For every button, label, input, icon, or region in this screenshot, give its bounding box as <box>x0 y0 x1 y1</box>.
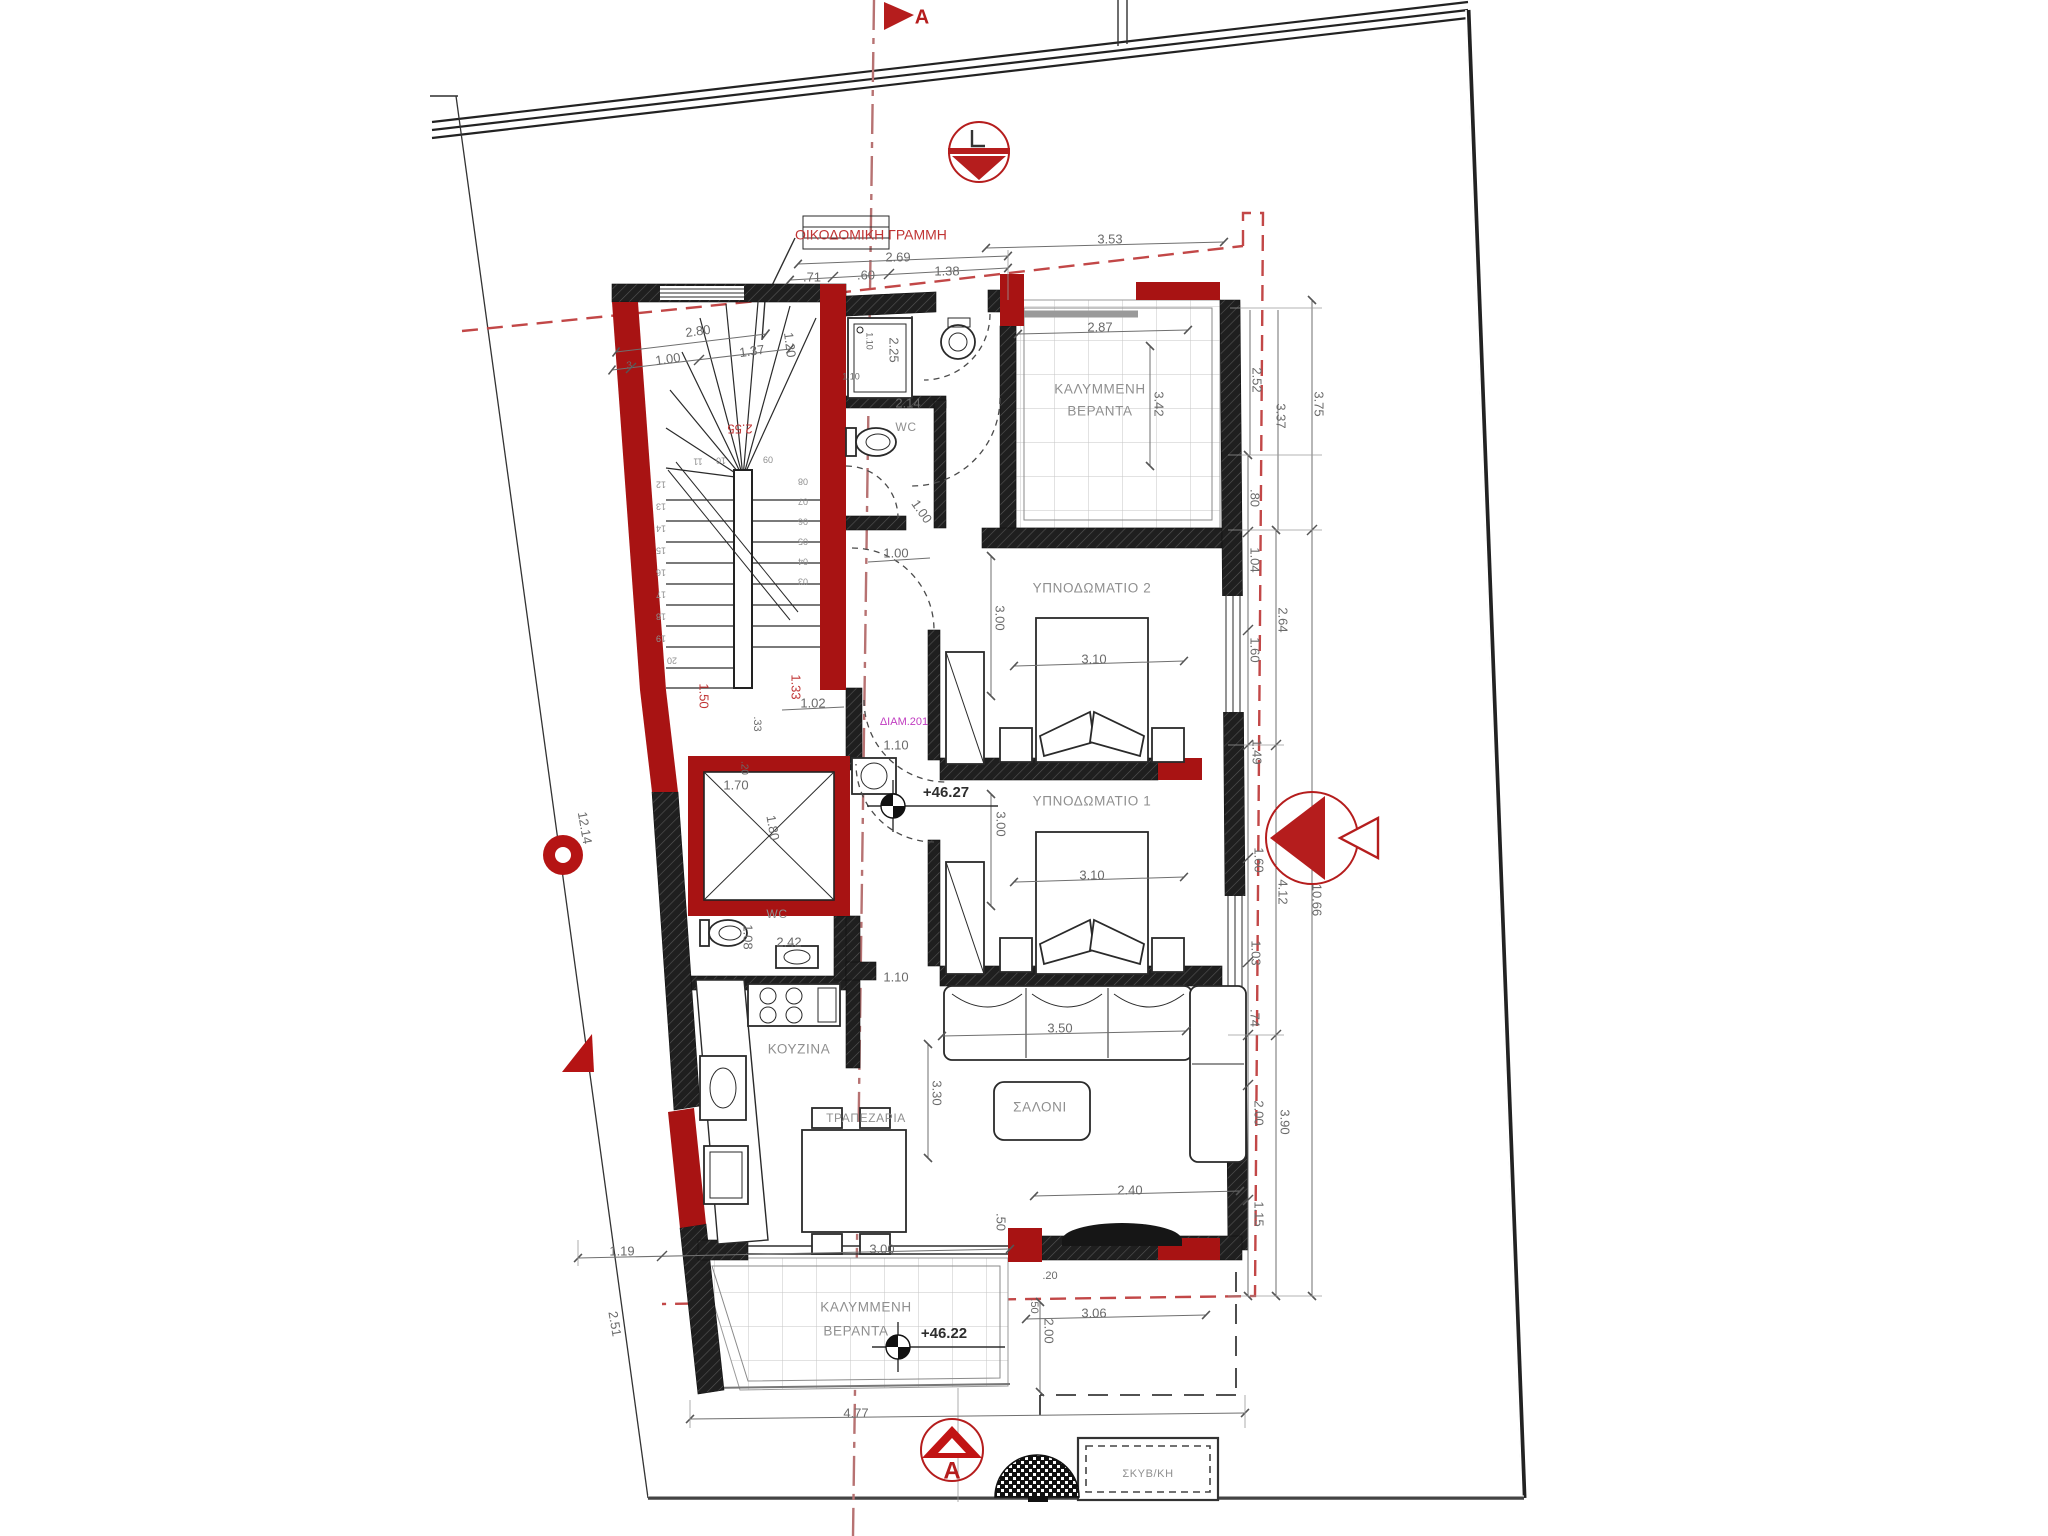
stair-num-04: 04 <box>798 557 808 567</box>
dim-3-50: 3.50 <box>1047 1020 1072 1035</box>
level-46-27: +46.27 <box>923 784 969 801</box>
room-veranda-top-2: ΒΕΡΑΝΤΑ <box>1067 404 1132 419</box>
bedroom1-furniture <box>946 832 1184 974</box>
room-kitchen: ΚΟΥΖΙΝΑ <box>768 1042 831 1057</box>
dim-10-66: 10.66 <box>1310 884 1325 917</box>
stair-num-13: 13 <box>656 502 666 512</box>
room-bedroom-1: ΥΠΝΟΔΩΜΑΤΙΟ 1 <box>1033 794 1152 809</box>
dim-1-19: 1.19 <box>609 1243 634 1258</box>
dim-1-70: 1.70 <box>723 777 748 792</box>
kitchen-sink-icon <box>700 1056 746 1120</box>
dim-4-77: 4.77 <box>843 1405 868 1420</box>
section-a-top: A <box>915 6 929 28</box>
dim-2-00-b: 2.00 <box>1042 1318 1057 1343</box>
dining-table <box>802 1130 906 1232</box>
dim-1-10-c: 1.10 <box>883 737 908 752</box>
dim-2-40: 2.40 <box>1117 1182 1142 1197</box>
dining-furniture <box>802 1108 906 1254</box>
dim-3-00-c: 3.00 <box>869 1241 894 1256</box>
tree-icon <box>995 1455 1079 1497</box>
dim-3-30: 3.30 <box>930 1080 945 1105</box>
floor-plan-drawing: ΟΙΚΟΔΟΜΙΚΗ ΓΡΑΜΜΗ3.532.69.71.601.382.80.… <box>0 0 2048 1536</box>
room-wc-2: WC <box>766 907 787 921</box>
toilet-1-tank <box>846 428 856 456</box>
stair-num-19: 19 <box>656 634 666 644</box>
stair-num-10: 10 <box>716 456 726 466</box>
stair-num-18: 18 <box>656 612 666 622</box>
stair-num-12: 12 <box>656 480 666 490</box>
dim-1-60-a: 1.60 <box>1248 637 1263 662</box>
room-bedroom-2: ΥΠΝΟΔΩΜΑΤΙΟ 2 <box>1033 581 1152 596</box>
dim-1-04: 1.04 <box>1248 547 1263 572</box>
room-veranda-bottom-2: ΒΕΡΑΝΤΑ <box>823 1324 888 1339</box>
dim-3-53: 3.53 <box>1097 231 1122 246</box>
stair-num-03: 03 <box>798 577 808 587</box>
stair-num-07: 07 <box>798 497 808 507</box>
stair-num-08: 08 <box>798 477 808 487</box>
dim-3-75: 3.75 <box>1312 391 1327 416</box>
stair-num-11: 11 <box>693 457 702 467</box>
staircase <box>666 302 820 688</box>
washbasin-icon <box>941 325 975 359</box>
room-living: ΣΑΛΟΝΙ <box>1013 1100 1067 1115</box>
stair-num-17: 17 <box>656 590 666 600</box>
room-wc-1: WC <box>895 420 916 434</box>
stair-num-20: 20 <box>667 656 677 666</box>
dim-33: .33 <box>751 716 763 731</box>
dim-1-10-d: 1.10 <box>883 969 908 984</box>
bedroom2-furniture <box>946 618 1184 764</box>
dim-2-42: 2.42 <box>776 934 801 949</box>
level-46-22: +46.22 <box>921 1325 967 1342</box>
building-line-label: ΟΙΚΟΔΟΜΙΚΗ ΓΡΑΜΜΗ <box>795 227 947 243</box>
dim-80: .80 <box>1248 489 1263 507</box>
dim-2-55: 2.55 <box>727 422 752 437</box>
dim-1-20: 1.20 <box>781 331 799 358</box>
dim-3-37: 3.37 <box>1274 403 1289 428</box>
dim-1-03: 1.03 <box>1249 940 1264 965</box>
north-symbol-icon <box>948 122 1010 182</box>
dim-3-42: 3.42 <box>1152 391 1167 416</box>
dim-1-10-b: 1.10 <box>842 371 860 381</box>
kitchen-appliance <box>704 1146 748 1204</box>
dim-1-49: 1.49 <box>1250 739 1265 764</box>
stair-num-15: 15 <box>656 546 666 556</box>
dim-20-b: .20 <box>1042 1270 1057 1282</box>
dim-3-00-a: 3.00 <box>993 605 1008 630</box>
dim-50-a: .50 <box>994 1213 1009 1231</box>
section-marker-right-icon <box>1266 792 1378 884</box>
dim-2-25: 2.25 <box>887 337 902 362</box>
stair-num-14: 14 <box>656 524 666 534</box>
dim-3-10-b: 3.10 <box>1079 867 1104 882</box>
dim-50-b: .50 <box>1028 1298 1040 1313</box>
living-furniture <box>944 986 1246 1246</box>
dim-2-69: 2.69 <box>885 249 910 264</box>
dim-1-15: 1.15 <box>1252 1201 1267 1226</box>
dim-3-00-b: 3.00 <box>994 811 1009 836</box>
apartment-id-label: ΔΙΑΜ.201 <box>880 716 928 728</box>
dim-1-00-a: 1.00 <box>654 350 681 368</box>
dim-4-12: 4.12 <box>1276 879 1291 904</box>
dim-2-14: 2.14 <box>895 395 920 410</box>
outbuilding-label: ΣΚΥΒ/ΚΗ <box>1122 1468 1173 1480</box>
dim-3-10-a: 3.10 <box>1081 651 1106 666</box>
room-veranda-bottom-1: ΚΑΛΥΜΜΕΝΗ <box>820 1300 911 1315</box>
left-boundary-markers <box>543 835 594 1072</box>
stair-num-09: 09 <box>763 455 773 465</box>
floor-plan-page: ΟΙΚΟΔΟΜΙΚΗ ΓΡΑΜΜΗ3.532.69.71.601.382.80.… <box>0 0 2048 1536</box>
stair-num-05: 05 <box>798 537 808 547</box>
outbuilding <box>995 1438 1218 1502</box>
dim-74: .74 <box>1248 1009 1263 1027</box>
dim-71: .71 <box>803 269 821 284</box>
tv-console-icon <box>1062 1223 1182 1246</box>
dim-1-37: 1.37 <box>738 342 765 360</box>
dim-2-00-a: 2.00 <box>1252 1100 1267 1125</box>
dim-1-38: 1.38 <box>934 263 959 278</box>
dim-12-14: 12.14 <box>575 810 595 845</box>
room-veranda-top-1: ΚΑΛΥΜΜΕΝΗ <box>1054 382 1145 397</box>
stair-num-06: 06 <box>798 517 808 527</box>
dim-2-80: 2.80 <box>684 322 711 340</box>
dim-1-02: 1.02 <box>800 695 825 710</box>
dim-2-64: 2.64 <box>1276 607 1291 632</box>
dim-1-50: 1.50 <box>697 683 712 708</box>
room-dining: ΤΡΑΠΕΖΑΡΙΑ <box>826 1111 906 1125</box>
dim-1-10-a: 1.10 <box>865 332 875 350</box>
dim-1-60-b: 1.60 <box>1252 847 1267 872</box>
toilet-2-tank <box>700 920 709 946</box>
dim-1-00-b: 1.00 <box>908 497 935 526</box>
dim-20-a: .20 <box>738 761 749 775</box>
stair-stringer <box>734 470 752 688</box>
dim-60: .60 <box>857 267 875 282</box>
dim-2-52: 2.52 <box>1250 367 1265 392</box>
dim-1-08: 1.08 <box>741 924 756 949</box>
dim-3-06: 3.06 <box>1081 1305 1106 1320</box>
section-arrow-top-icon <box>884 2 914 30</box>
dim-2-87: 2.87 <box>1087 319 1112 334</box>
dim-2-51: 2.51 <box>605 1310 624 1338</box>
section-a-bottom: A <box>943 1457 960 1484</box>
dim-1-00-c: 1.00 <box>883 545 908 560</box>
sofa-chaise <box>1190 986 1246 1162</box>
stair-num-16: 16 <box>656 568 666 578</box>
dim-3-90: 3.90 <box>1278 1109 1293 1134</box>
